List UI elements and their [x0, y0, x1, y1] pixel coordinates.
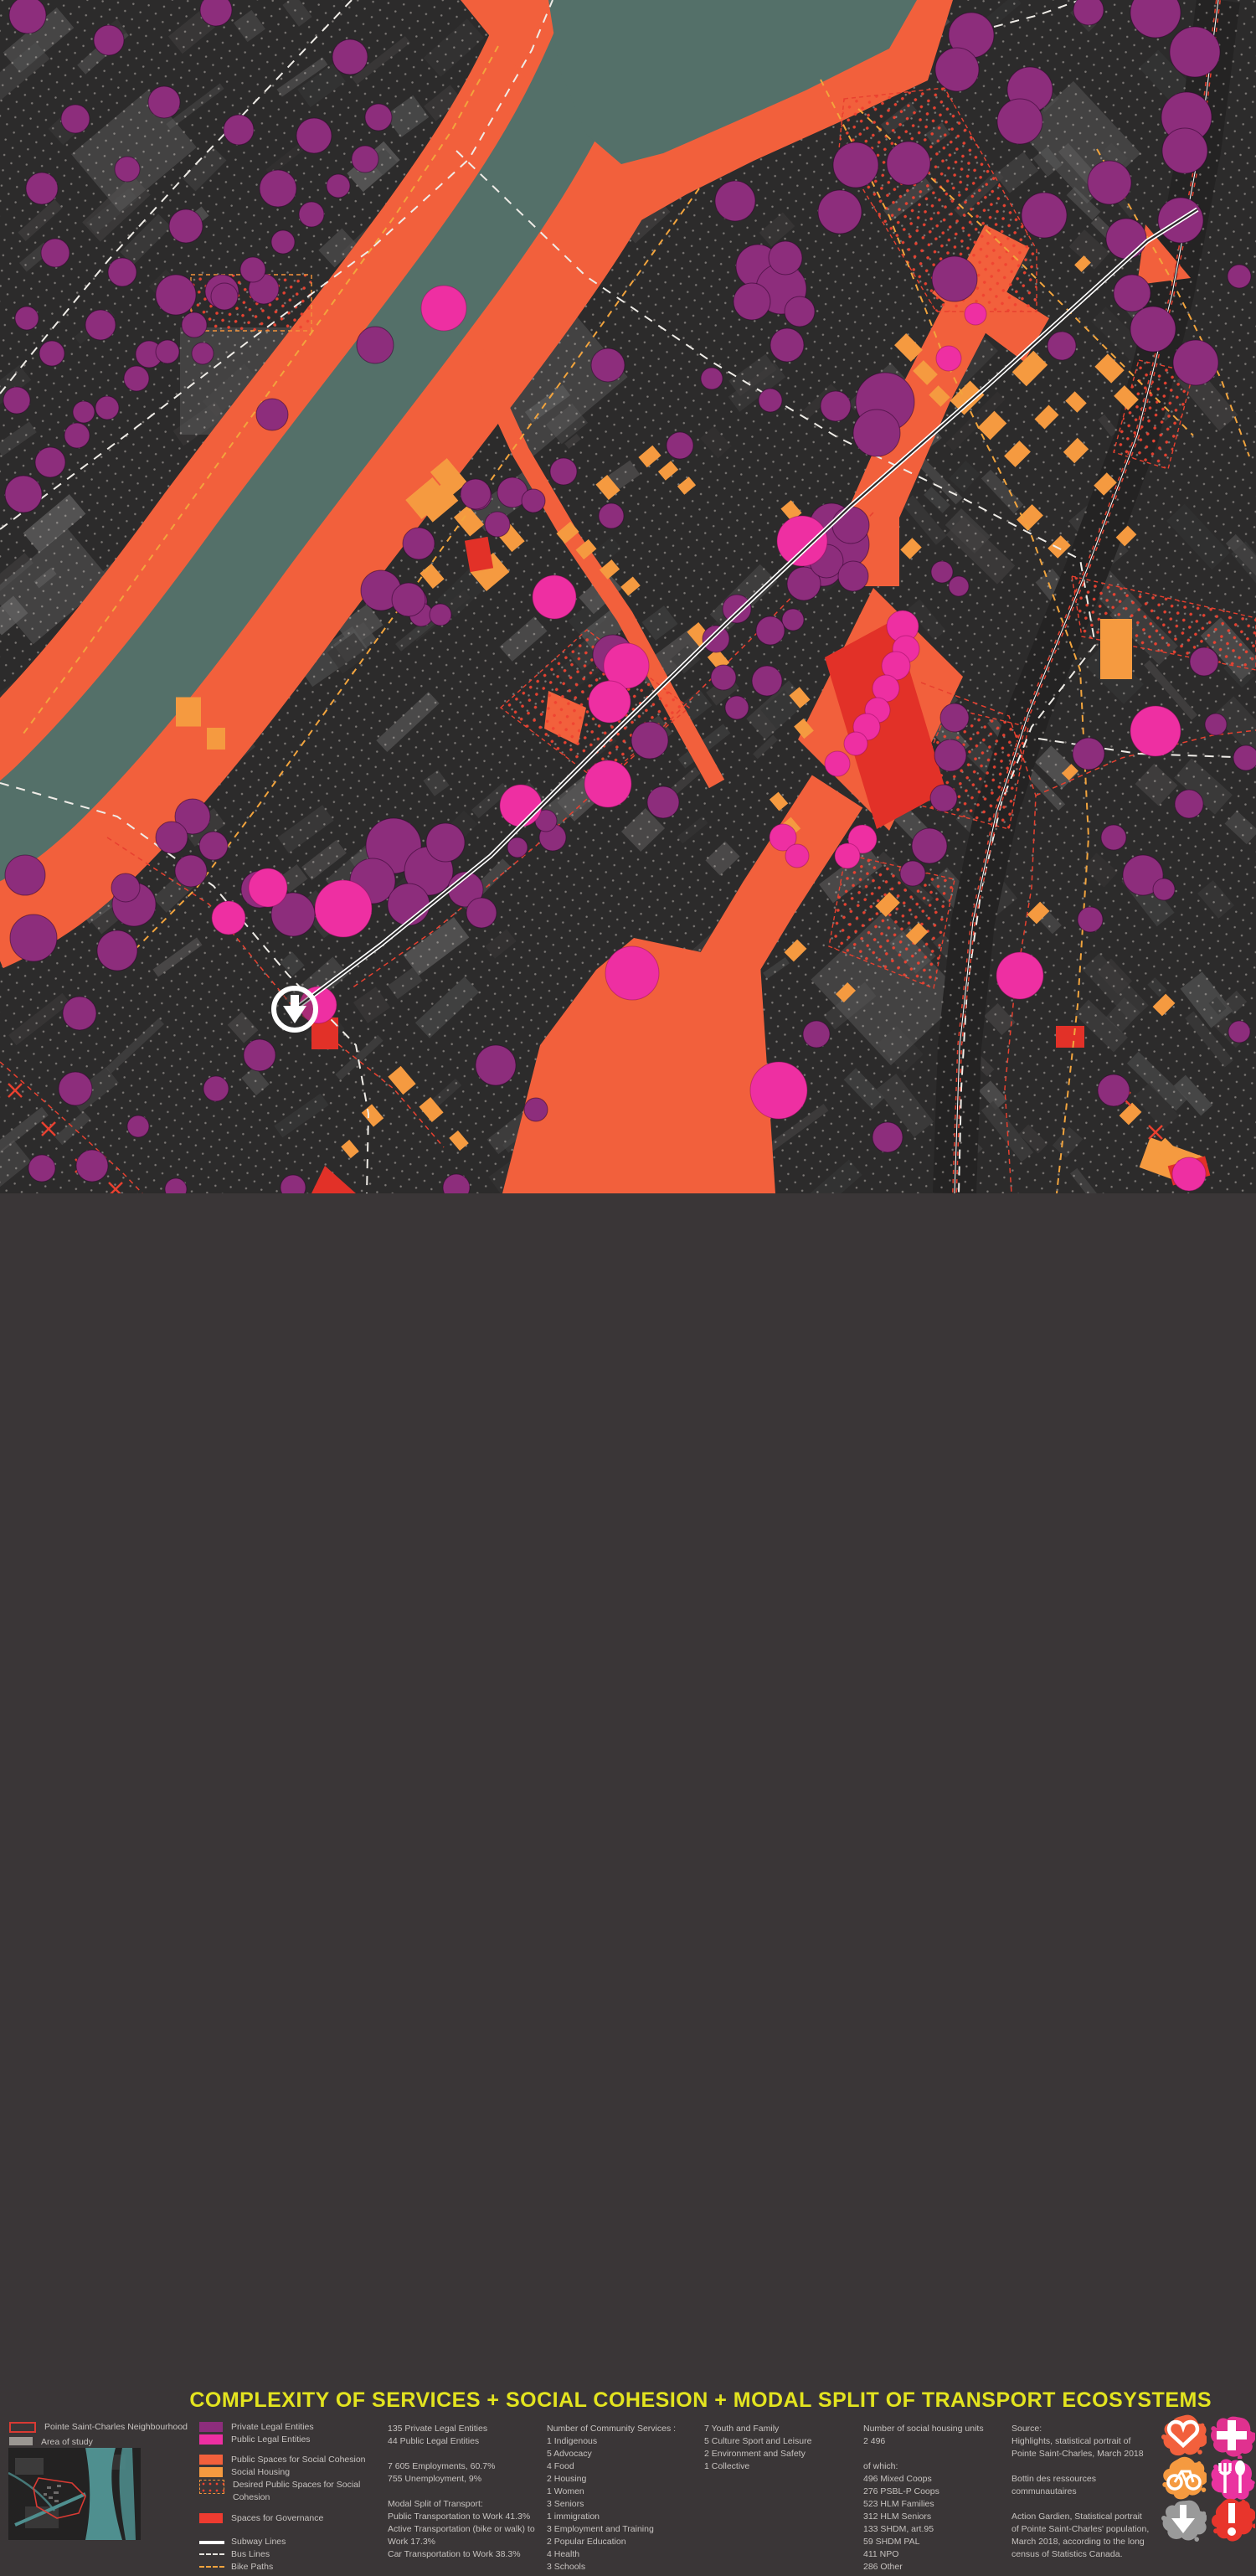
study-area-swatch: [9, 2437, 33, 2445]
public-spaces-label: Public Spaces for Social Cohesion: [231, 2454, 366, 2466]
alert-icon: [1207, 2499, 1256, 2541]
stat-line: communautaires: [1011, 2486, 1149, 2498]
stat-line: Highlights, statistical portrait of: [1011, 2435, 1149, 2448]
social-housing-row: Social Housing: [199, 2466, 375, 2479]
stat-line: 523 HLM Families: [863, 2498, 984, 2511]
stat-line: Bottin des ressources: [1011, 2473, 1149, 2486]
subway-line-sample: [199, 2541, 224, 2544]
private-entities-label: Private Legal Entities: [231, 2421, 314, 2434]
stat-line: 496 Mixed Coops: [863, 2473, 984, 2486]
stat-line: 2 Housing: [547, 2473, 676, 2486]
stat-line: Source:: [1011, 2423, 1149, 2435]
heart-icon: [1160, 2412, 1207, 2459]
legend-symbols: Private Legal Entities Public Legal Enti…: [199, 2421, 375, 2576]
public-entities-swatch: [199, 2434, 223, 2445]
subway-lines-row: Subway Lines: [199, 2536, 375, 2548]
map-svg: [0, 0, 1256, 1193]
subway-lines-label: Subway Lines: [231, 2536, 286, 2548]
food-icon: [1207, 2457, 1256, 2499]
medical-cross-icon: [1207, 2414, 1256, 2456]
stat-line: [863, 2448, 984, 2460]
inset-map-graphic: [8, 2448, 141, 2540]
stat-line: 276 PSBL-P Coops: [863, 2486, 984, 2498]
stats-source-column: Source:Highlights, statistical portrait …: [1011, 2423, 1149, 2561]
private-entities-swatch: [199, 2422, 223, 2432]
poster-title: COMPLEXITY OF SERVICES + SOCIAL COHESION…: [0, 2388, 1212, 2413]
stat-line: 133 SHDM, art.95: [863, 2523, 984, 2536]
stat-line: 3 Employment and Training: [547, 2523, 676, 2536]
public-entities-row: Public Legal Entities: [199, 2434, 375, 2446]
stat-line: Number of social housing units: [863, 2423, 984, 2435]
stat-line: 1 Women: [547, 2486, 676, 2498]
stat-line: 312 HLM Seniors: [863, 2511, 984, 2523]
stat-line: 44 Public Legal Entities: [388, 2435, 535, 2448]
stat-line: [1011, 2460, 1149, 2473]
stat-line: 411 NPO: [863, 2548, 984, 2561]
desired-spaces-label: Desired Public Spaces for Social Cohesio…: [233, 2479, 375, 2504]
stat-line: [388, 2448, 535, 2460]
stat-line: of which:: [863, 2460, 984, 2473]
alert-icon: [1208, 2496, 1255, 2543]
stat-line: Number of Community Services :: [547, 2423, 676, 2435]
study-area-label: Area of study: [41, 2436, 93, 2449]
stat-line: [1011, 2498, 1149, 2511]
stat-line: Pointe Saint-Charles, March 2018: [1011, 2448, 1149, 2460]
stat-line: 59 SHDM PAL: [863, 2536, 984, 2548]
bicycle-icon: [1159, 2457, 1207, 2499]
private-entities-row: Private Legal Entities: [199, 2421, 375, 2434]
stat-line: Work 17.3%: [388, 2536, 535, 2548]
stat-line: 7 Youth and Family: [704, 2423, 811, 2435]
stat-line: Active Transportation (bike or walk) to: [388, 2523, 535, 2536]
stat-line: Public Transportation to Work 41.3%: [388, 2511, 535, 2523]
bus-line-sample: [199, 2553, 224, 2555]
inset-locator-map: [8, 2448, 141, 2540]
map-canvas: [0, 0, 1256, 1193]
stat-line: 4 Health: [547, 2548, 676, 2561]
stat-line: Action Gardien, Statistical portrait: [1011, 2511, 1149, 2523]
stat-line: of Pointe Saint-Charles' population,: [1011, 2523, 1149, 2536]
stat-line: March 2018, according to the long: [1011, 2536, 1149, 2548]
bus-lines-row: Bus Lines: [199, 2548, 375, 2561]
stat-line: 1 immigration: [547, 2511, 676, 2523]
desired-spaces-swatch: [199, 2480, 224, 2494]
stat-line: [388, 2486, 535, 2498]
bike-paths-row: Bike Paths: [199, 2561, 375, 2573]
down-arrow-icon: [1159, 2499, 1207, 2541]
stat-line: 3 Schools: [547, 2561, 676, 2573]
stat-line: Modal Split of Transport:: [388, 2498, 535, 2511]
social-housing-swatch: [199, 2467, 223, 2477]
stat-line: 755 Unemployment, 9%: [388, 2473, 535, 2486]
governance-swatch: [199, 2513, 223, 2523]
icon-grid: [1159, 2414, 1256, 2542]
stat-line: 4 Food: [547, 2460, 676, 2473]
food-icon: [1208, 2455, 1255, 2501]
bus-lines-label: Bus Lines: [231, 2548, 270, 2561]
governance-row: Spaces for Governance: [199, 2512, 375, 2525]
stat-line: 1 Collective: [704, 2460, 811, 2473]
heart-icon: [1159, 2414, 1207, 2456]
poster-root: { "title": "COMPLEXITY OF SERVICES + SOC…: [0, 0, 1256, 1353]
neighbourhood-outline-swatch: [9, 2422, 36, 2433]
stats-legal-column: 135 Private Legal Entities44 Public Lega…: [388, 2423, 535, 2561]
medical-cross-icon: [1208, 2412, 1255, 2459]
stat-line: 2 496: [863, 2435, 984, 2448]
neighbourhood-label: Pointe Saint-Charles Neighbourhood: [44, 2421, 188, 2434]
legend-area-of-study: Pointe Saint-Charles Neighbourhood Area …: [9, 2421, 188, 2451]
stats-services2-column: 7 Youth and Family5 Culture Sport and Le…: [704, 2423, 811, 2473]
stat-line: 7 605 Employments, 60.7%: [388, 2460, 535, 2473]
stat-line: Car Transportation to Work 38.3%: [388, 2548, 535, 2561]
stat-line: 5 Advocacy: [547, 2448, 676, 2460]
stat-line: 5 Culture Sport and Leisure: [704, 2435, 811, 2448]
down-arrow-icon: [1160, 2496, 1207, 2543]
stats-housing-column: Number of social housing units2 496 of w…: [863, 2423, 984, 2573]
social-housing-label: Social Housing: [231, 2466, 290, 2479]
legend-neighbourhood-row: Pointe Saint-Charles Neighbourhood: [9, 2421, 188, 2434]
bike-paths-label: Bike Paths: [231, 2561, 273, 2573]
stat-line: 135 Private Legal Entities: [388, 2423, 535, 2435]
stat-line: 3 Seniors: [547, 2498, 676, 2511]
desired-spaces-row: Desired Public Spaces for Social Cohesio…: [199, 2479, 375, 2504]
public-entities-label: Public Legal Entities: [231, 2434, 311, 2446]
stat-line: 2 Environment and Safety: [704, 2448, 811, 2460]
legend-study-row: Area of study: [9, 2436, 188, 2449]
stat-line: 1 Indigenous: [547, 2435, 676, 2448]
metro-station-icon: [274, 988, 316, 1030]
stat-line: 286 Other: [863, 2561, 984, 2573]
stat-line: census of Statistics Canada.: [1011, 2548, 1149, 2561]
legend-bar: COMPLEXITY OF SERVICES + SOCIAL COHESION…: [0, 1193, 1256, 1353]
bicycle-icon: [1160, 2455, 1207, 2501]
governance-label: Spaces for Governance: [231, 2512, 323, 2525]
public-spaces-row: Public Spaces for Social Cohesion: [199, 2454, 375, 2466]
bike-path-sample: [199, 2566, 224, 2568]
stat-line: 2 Popular Education: [547, 2536, 676, 2548]
stats-services-column: Number of Community Services :1 Indigeno…: [547, 2423, 676, 2573]
public-spaces-swatch: [199, 2455, 223, 2465]
